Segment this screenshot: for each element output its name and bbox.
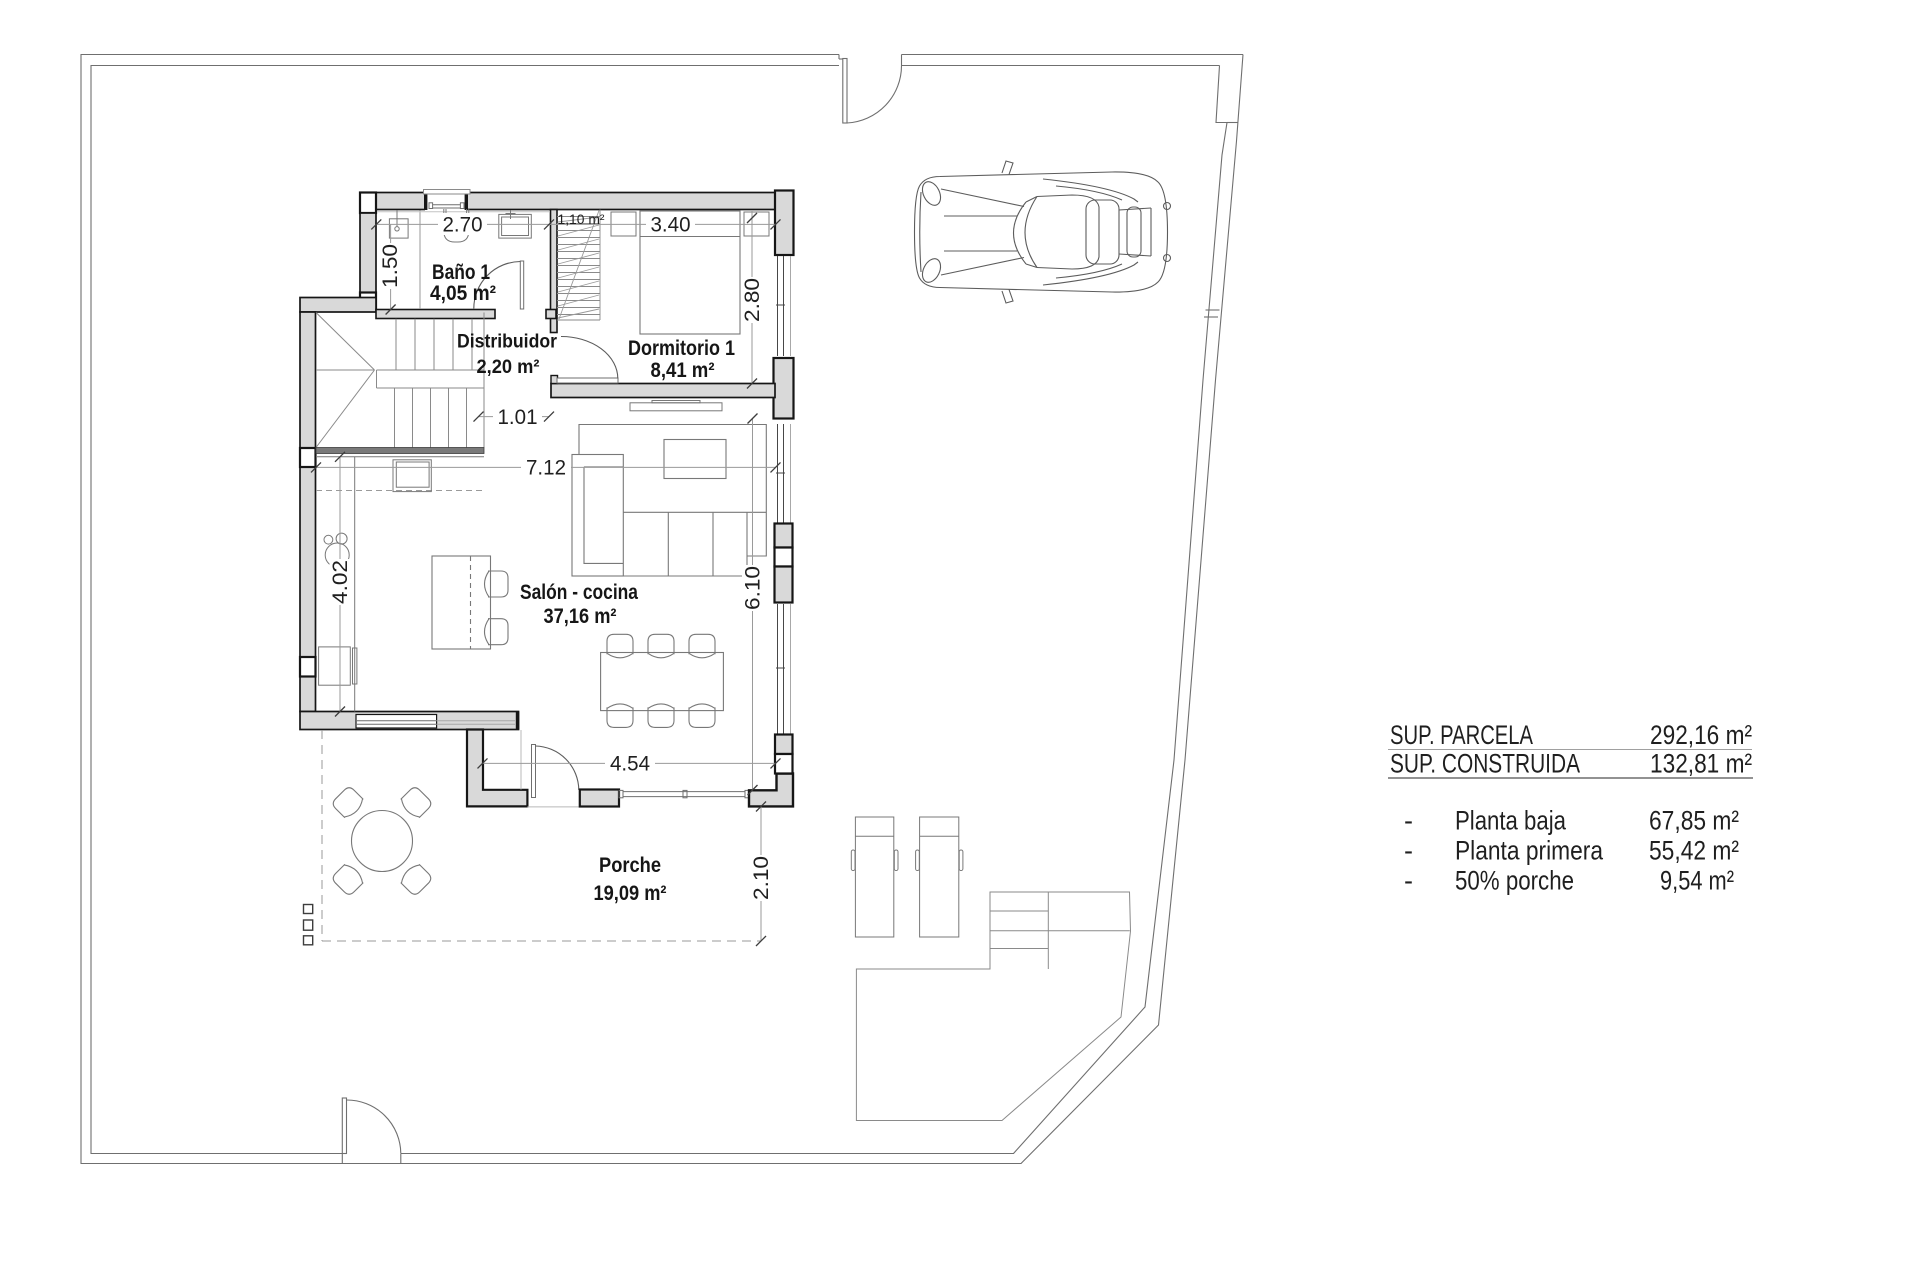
svg-text:-: - xyxy=(1404,806,1413,836)
svg-text:Salón - cocina: Salón - cocina xyxy=(520,581,638,604)
svg-text:37,16 m²: 37,16 m² xyxy=(544,605,617,628)
svg-text:3.40: 3.40 xyxy=(651,214,691,237)
svg-text:4.02: 4.02 xyxy=(329,560,352,604)
svg-text:292,16 m²: 292,16 m² xyxy=(1650,720,1752,750)
svg-text:67,85 m²: 67,85 m² xyxy=(1649,806,1739,836)
svg-text:55,42 m²: 55,42 m² xyxy=(1649,836,1739,866)
svg-text:50% porche: 50% porche xyxy=(1455,866,1574,896)
svg-text:SUP. PARCELA: SUP. PARCELA xyxy=(1390,720,1533,750)
svg-text:-: - xyxy=(1404,866,1413,896)
svg-text:-: - xyxy=(1404,836,1413,866)
svg-text:4,05 m²: 4,05 m² xyxy=(430,282,496,305)
svg-text:Distribuidor: Distribuidor xyxy=(457,332,558,353)
svg-text:9,54 m²: 9,54 m² xyxy=(1660,866,1734,896)
svg-text:19,09 m²: 19,09 m² xyxy=(594,882,667,905)
svg-text:Dormitorio 1: Dormitorio 1 xyxy=(628,337,735,360)
svg-text:2.80: 2.80 xyxy=(741,278,764,322)
svg-text:1,10 m²: 1,10 m² xyxy=(558,211,605,227)
svg-text:Baño 1: Baño 1 xyxy=(432,261,490,284)
svg-text:Planta baja: Planta baja xyxy=(1455,806,1567,836)
svg-text:6.10: 6.10 xyxy=(742,566,765,610)
svg-text:SUP. CONSTRUIDA: SUP. CONSTRUIDA xyxy=(1390,749,1580,779)
svg-text:1.01: 1.01 xyxy=(498,406,538,429)
svg-text:Porche: Porche xyxy=(599,854,661,877)
svg-text:1.50: 1.50 xyxy=(379,244,402,288)
svg-text:2.10: 2.10 xyxy=(750,856,773,900)
svg-text:7.12: 7.12 xyxy=(526,457,566,480)
svg-text:2,20 m²: 2,20 m² xyxy=(477,357,540,378)
svg-text:4.54: 4.54 xyxy=(610,753,650,776)
svg-text:132,81 m²: 132,81 m² xyxy=(1650,749,1752,779)
svg-text:2.70: 2.70 xyxy=(443,214,483,237)
svg-text:8,41 m²: 8,41 m² xyxy=(651,359,715,382)
svg-text:Planta primera: Planta primera xyxy=(1455,836,1604,866)
